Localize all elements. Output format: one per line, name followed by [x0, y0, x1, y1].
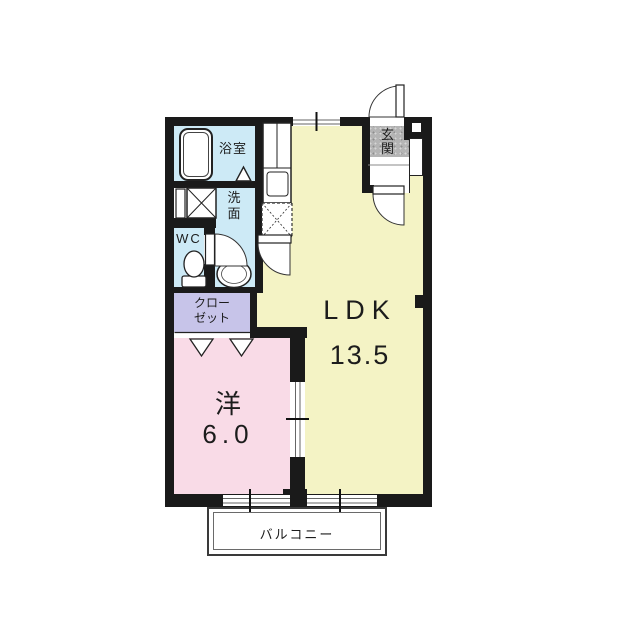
hall-door: [373, 186, 404, 225]
washroom-label-line2: 面: [224, 206, 244, 222]
floorplan-canvas: バルコニー: [0, 0, 640, 640]
washing-machine-space: [187, 188, 216, 218]
western-room-size-label: 6.0: [170, 419, 286, 450]
wc-door: [206, 234, 248, 266]
refrigerator-space: [262, 203, 292, 237]
toilet: [182, 251, 206, 287]
closet-folding-door-markers: [175, 333, 254, 357]
laundry-shelf: [176, 189, 185, 218]
bathroom-label: 浴室: [205, 138, 261, 157]
wc-label: WC: [174, 231, 204, 246]
kitchen-counter: [263, 123, 291, 203]
ldk-window: [307, 489, 377, 512]
closet-label-line1: クロー: [174, 296, 250, 311]
ldk-size-label: 13.5: [300, 340, 420, 371]
washroom-label: 洗 面: [224, 190, 244, 222]
genkan-label-line2: 関: [379, 142, 396, 156]
western-room-window: [223, 489, 290, 512]
closet-label-line2: ゼット: [174, 311, 250, 326]
room-sliding-door: [286, 382, 309, 457]
bathroom-door-marker: [236, 167, 251, 181]
western-room-label: 洋: [170, 384, 286, 421]
closet-label: クロー ゼット: [174, 296, 250, 326]
ldk-label: LDK: [300, 295, 420, 326]
kitchen-window: [293, 112, 340, 131]
genkan-label: 玄 関: [379, 128, 396, 156]
kitchen-door: [258, 235, 291, 275]
washroom-label-line1: 洗: [224, 190, 244, 206]
genkan-label-line1: 玄: [379, 128, 396, 142]
entrance-door: [369, 85, 404, 117]
